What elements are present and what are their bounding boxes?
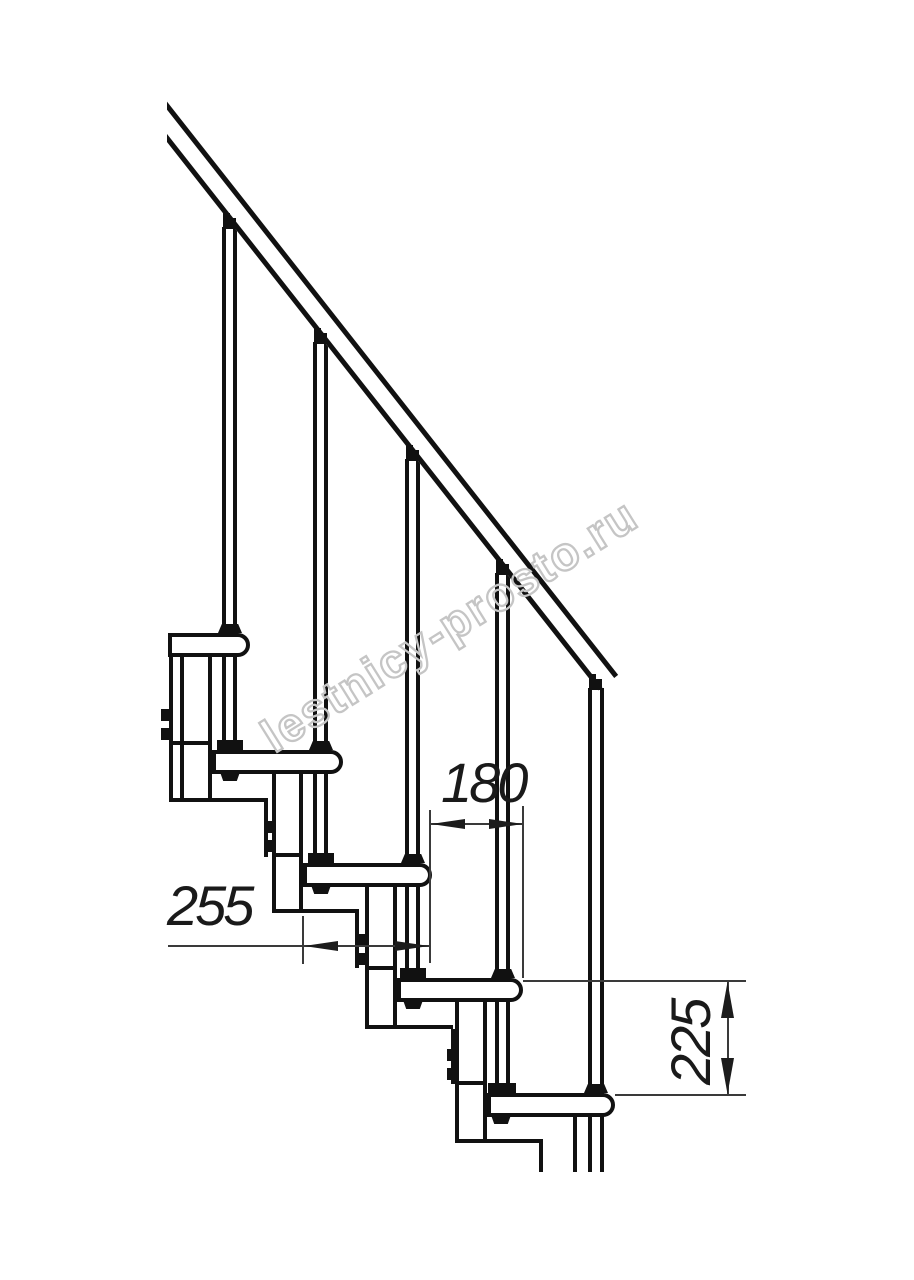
stair-tread-3 bbox=[303, 863, 432, 887]
staircase-drawing: 180 255 225 lestnicy-prosto.ru bbox=[0, 0, 914, 1280]
mounting-bracket bbox=[264, 840, 274, 852]
mounting-bracket bbox=[447, 1068, 457, 1080]
support-column-2 bbox=[272, 770, 303, 913]
stair-tread-5 bbox=[487, 1093, 615, 1117]
tread-bolt-nut bbox=[403, 1000, 423, 1009]
rail-connector bbox=[406, 450, 419, 461]
column-base-line bbox=[539, 1143, 543, 1172]
baluster-2 bbox=[313, 342, 328, 856]
crop-cover bbox=[0, 0, 167, 620]
mounting-bracket bbox=[264, 821, 274, 833]
rail-connector-step bbox=[223, 213, 230, 218]
dimension-line-255 bbox=[168, 945, 430, 947]
dimension-run-label: 180 bbox=[441, 755, 525, 811]
stair-tread-1 bbox=[168, 633, 250, 657]
baluster-3 bbox=[405, 459, 420, 971]
dimension-rise-label: 225 bbox=[663, 1001, 719, 1085]
column-detail-line bbox=[368, 966, 394, 970]
rail-connector bbox=[223, 218, 236, 229]
extension-line bbox=[429, 810, 431, 963]
baluster-4 bbox=[495, 573, 510, 1086]
baluster-collar bbox=[584, 1084, 608, 1093]
rail-connector-step bbox=[589, 674, 596, 679]
rail-connector-step bbox=[314, 328, 321, 333]
dimension-arrow bbox=[304, 941, 338, 951]
extension-line bbox=[522, 806, 524, 978]
baluster-collar bbox=[491, 969, 515, 978]
column-detail-line bbox=[172, 741, 210, 745]
column-base-line bbox=[303, 909, 359, 913]
tread-bolt-nut bbox=[220, 772, 240, 781]
column-detail-line bbox=[275, 853, 300, 857]
mounting-bracket bbox=[161, 728, 171, 740]
column-base-line bbox=[573, 1115, 577, 1172]
baluster-base-connector bbox=[308, 853, 334, 863]
baluster-base-connector bbox=[217, 740, 243, 750]
baluster-collar bbox=[401, 854, 425, 863]
tread-bolt-nut bbox=[311, 885, 331, 894]
column-base-line bbox=[212, 798, 268, 802]
baluster-1 bbox=[222, 227, 237, 742]
rail-connector-step bbox=[406, 445, 413, 450]
dimension-arrow bbox=[431, 819, 465, 829]
support-column-1 bbox=[169, 653, 212, 802]
column-detail-line bbox=[180, 655, 184, 800]
column-base-line bbox=[487, 1139, 543, 1143]
baluster-collar bbox=[218, 624, 242, 633]
support-column-4 bbox=[455, 998, 487, 1143]
mounting-bracket bbox=[357, 953, 367, 965]
rail-connector bbox=[314, 333, 327, 344]
column-detail-line bbox=[458, 1081, 484, 1085]
dimension-arrow bbox=[721, 982, 734, 1018]
stair-tread-4 bbox=[397, 978, 523, 1002]
dimension-arrow bbox=[721, 1058, 734, 1094]
mounting-bracket bbox=[161, 709, 171, 721]
column-base-line bbox=[397, 1025, 453, 1029]
tread-bolt-nut bbox=[491, 1115, 511, 1124]
support-column-3 bbox=[365, 883, 397, 1029]
dimension-depth-label: 255 bbox=[167, 878, 251, 934]
baluster-base-connector bbox=[488, 1083, 516, 1093]
extension-line bbox=[523, 980, 746, 982]
baluster-base-connector bbox=[400, 968, 426, 978]
rail-connector bbox=[589, 679, 602, 690]
extension-line bbox=[302, 916, 304, 964]
mounting-bracket bbox=[447, 1049, 457, 1061]
